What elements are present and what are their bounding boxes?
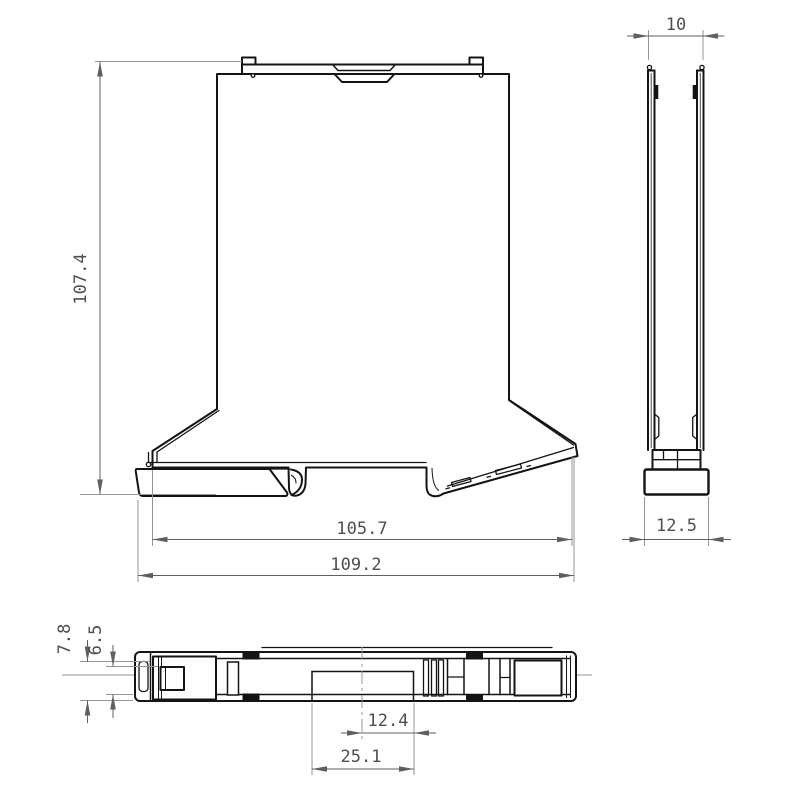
front-body-outline [153, 74, 578, 496]
dimension-side-foot-width: 12.5 [622, 497, 731, 546]
side-body [645, 65, 709, 494]
din-latch [136, 469, 288, 496]
bottom-rib [228, 662, 239, 695]
dim-label-front-height: 107.4 [71, 253, 91, 304]
side-seam-left [655, 85, 659, 99]
side-hook-left [647, 65, 651, 69]
front-body [136, 58, 578, 497]
dim-label-bottom-cutout-offset: 12.4 [368, 711, 409, 731]
dim-label-side-foot-width: 12.5 [656, 516, 697, 536]
side-foot [645, 470, 709, 495]
bottom-body [62, 648, 592, 702]
front-top-tab-left [242, 58, 256, 65]
dim-label-front-overall-width: 109.2 [330, 555, 381, 575]
side-view: 10 12.5 [622, 15, 731, 546]
side-hook-right [700, 65, 704, 69]
dim-label-bottom-cutout-width: 25.1 [341, 747, 382, 767]
bottom-latch-block [161, 667, 185, 690]
front-view: 107.4 105.7 109.2 [71, 58, 578, 583]
bottom-end-pocket [515, 661, 562, 696]
dimension-side-top-width: 10 [627, 15, 725, 60]
front-top-bar [242, 65, 483, 75]
side-seam-right [693, 85, 697, 99]
dim-label-bottom-outer-depth: 7.8 [55, 624, 75, 655]
dim-label-bottom-inner-depth: 6.5 [86, 625, 106, 656]
front-pin-right [479, 74, 483, 78]
dim-label-side-top-width: 10 [666, 15, 686, 35]
front-top-tab-right [470, 58, 484, 65]
dim-label-front-body-width: 105.7 [336, 519, 387, 539]
engineering-drawing-canvas: 107.4 105.7 109.2 [0, 0, 800, 800]
front-pin-left [251, 74, 255, 78]
din-enclosure-drawing: 107.4 105.7 109.2 [0, 0, 800, 800]
bottom-view: 7.8 6.5 12.4 25.1 [55, 624, 592, 775]
